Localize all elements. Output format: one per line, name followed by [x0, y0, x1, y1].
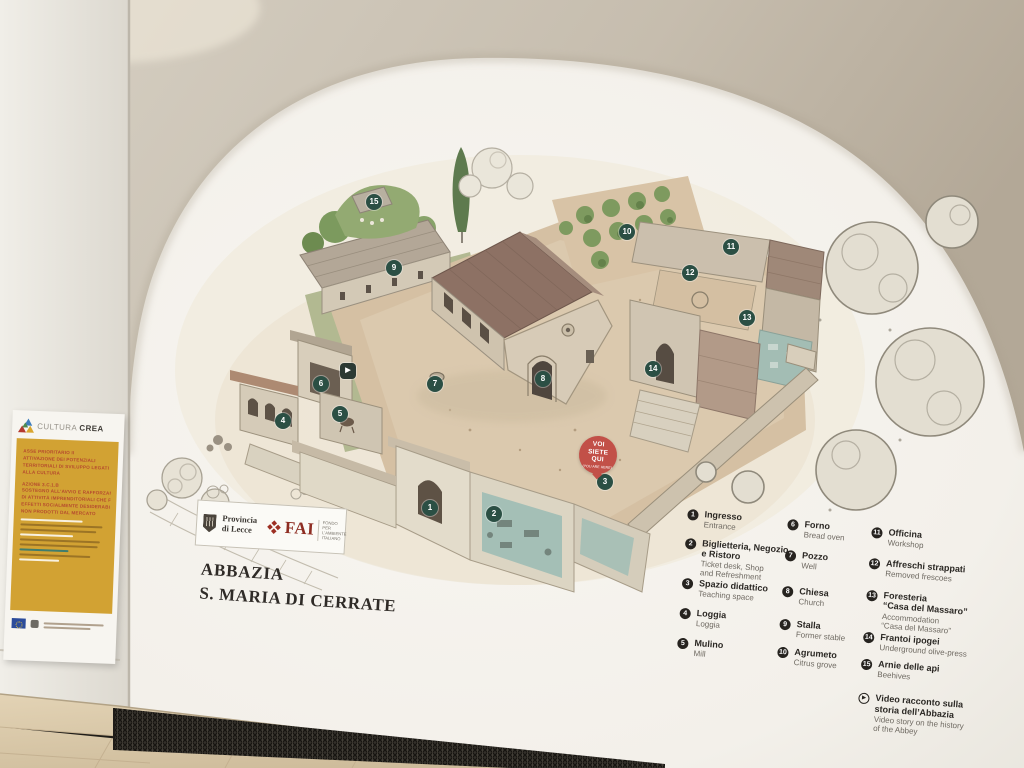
- map-marker-13: 13: [739, 310, 755, 326]
- map-marker-1: 1: [422, 500, 438, 516]
- legend-number-badge: 8: [782, 586, 794, 598]
- fai-logo-icon: [266, 520, 281, 535]
- map-marker-5: 5: [332, 406, 348, 422]
- legend-label-en: Entrance: [703, 521, 741, 533]
- map-marker-11: 11: [723, 239, 739, 255]
- fai-name: FAI: [284, 518, 315, 540]
- legend-number-badge: 13: [866, 590, 878, 602]
- poster-footer-logos: [4, 612, 117, 632]
- eu-flag-icon: [11, 618, 25, 629]
- legend-label-it: Pozzo: [802, 550, 829, 562]
- legend-item-15: 15Arnie delle apiBeehives: [860, 657, 991, 688]
- legend-number-badge: 1: [687, 509, 699, 521]
- you-are-here-label: VOI SIETE QUI: [587, 441, 609, 465]
- legend-number-badge: 15: [861, 658, 873, 670]
- legend-label-en: Church: [798, 597, 828, 608]
- legend-number-badge: 5: [677, 637, 689, 649]
- provincia-di-lecce-label: Provincia di Lecce: [221, 514, 257, 536]
- map-marker-2: 2: [486, 506, 502, 522]
- poster-brand-bold: CREA: [79, 423, 104, 433]
- legend-number-badge: 2: [685, 537, 697, 549]
- legend-label-en: Loggia: [696, 619, 726, 630]
- cultura-crea-poster: CULTURA CREA ASSE PRIORITARIO IIATTIVAZI…: [3, 410, 125, 664]
- fai-subtitle: FONDO PER L'AMBIENTE ITALIANO: [318, 519, 348, 542]
- map-marker-6: 6: [313, 376, 329, 392]
- poster-program-box: ASSE PRIORITARIO IIATTIVAZIONE DEI POTEN…: [10, 438, 119, 614]
- legend-number-badge: 14: [863, 632, 875, 644]
- map-marker-12: 12: [682, 265, 698, 281]
- poster-brand: CULTURA CREA: [37, 421, 104, 433]
- partner-logo-icon: [30, 620, 38, 628]
- poster-program-lines: ASSE PRIORITARIO IIATTIVAZIONE DEI POTEN…: [21, 448, 113, 518]
- photo-of-abbey-map-wall: 123456789101112131415▶ VOI SIETE QUI (YO…: [0, 0, 1024, 768]
- legend-number-badge: 3: [682, 577, 694, 589]
- legend-label-en: Well: [801, 561, 828, 572]
- legend-number-badge: 9: [779, 618, 791, 630]
- map-marker-9: 9: [386, 260, 402, 276]
- legend-number-badge: 4: [679, 608, 691, 620]
- you-are-here-sub: (YOU ARE HERE): [582, 464, 612, 470]
- legend-item-12: 12Affreschi strappatiRemoved frescoes: [868, 556, 999, 587]
- provincia-di-lecce-crest-icon: [203, 514, 217, 533]
- legend-col-3: 11OfficinaWorkshop12Affreschi strappatiR…: [856, 526, 1002, 742]
- poster-brand-light: CULTURA: [37, 421, 77, 432]
- legend-number-badge: 11: [871, 527, 883, 539]
- cultura-crea-triangle-logo: [18, 418, 34, 433]
- legend-label-en: Bread oven: [803, 531, 845, 543]
- legend-number-badge: 7: [785, 549, 797, 561]
- legend-number-badge: 6: [787, 519, 799, 531]
- map-marker-4: 4: [275, 413, 291, 429]
- map-marker-10: 10: [619, 224, 635, 240]
- map-marker-14: 14: [645, 361, 661, 377]
- map-video-icon: ▶: [340, 363, 356, 379]
- legend-label-en: Workshop: [887, 539, 923, 551]
- legend-video-icon: ▶: [858, 693, 870, 705]
- map-marker-8: 8: [535, 371, 551, 387]
- legend-number-badge: 10: [777, 647, 789, 659]
- map-marker-7: 7: [427, 376, 443, 392]
- provincia-line2: di Lecce: [222, 523, 253, 535]
- map-marker-15: 15: [366, 194, 382, 210]
- legend-number-badge: 12: [869, 557, 881, 569]
- institution-plaque: Provincia di Lecce FAI FONDO PER L'AMBIE…: [195, 499, 348, 554]
